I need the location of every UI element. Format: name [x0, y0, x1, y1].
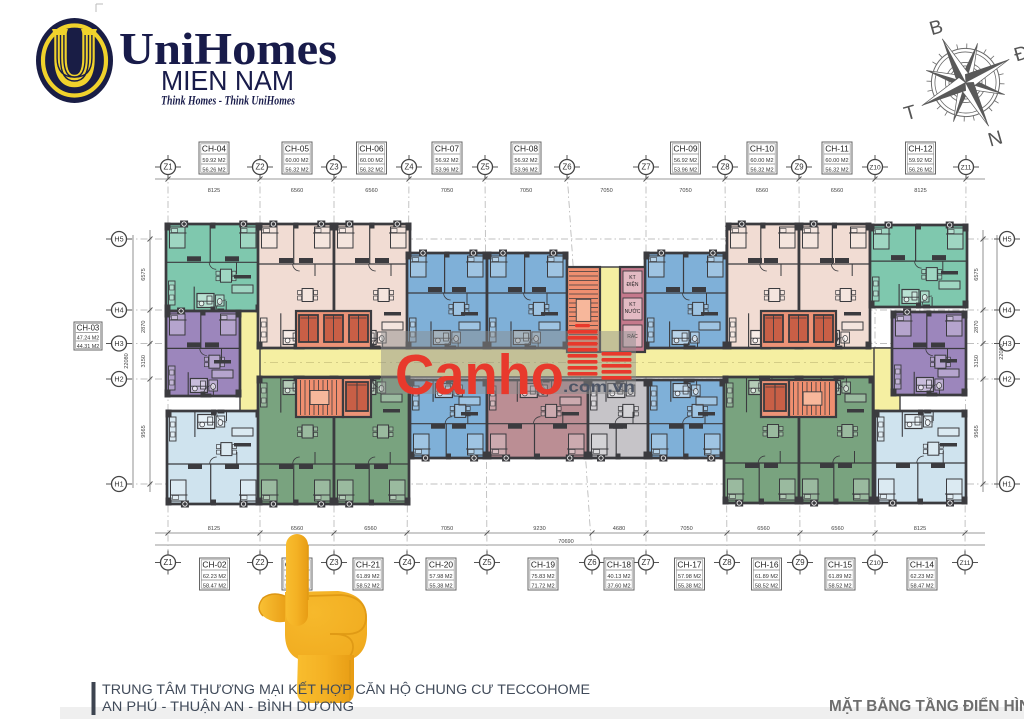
svg-text:Z11: Z11 — [961, 165, 972, 172]
svg-text:56.92 M2: 56.92 M2 — [435, 158, 458, 164]
svg-text:56.26 M2: 56.26 M2 — [909, 168, 932, 174]
svg-text:3150: 3150 — [974, 355, 980, 367]
svg-text:8125: 8125 — [914, 526, 926, 532]
svg-text:CH-04: CH-04 — [202, 144, 227, 154]
svg-text:55.38 M2: 55.38 M2 — [678, 584, 701, 590]
svg-text:ĐIỆN: ĐIỆN — [627, 280, 639, 288]
svg-text:Z1: Z1 — [163, 558, 172, 567]
svg-text:MẶT BẰNG TẦNG ĐIỂN HÌNH: MẶT BẰNG TẦNG ĐIỂN HÌNH — [829, 697, 1024, 715]
svg-text:CH-02: CH-02 — [202, 560, 227, 570]
svg-text:CH-14: CH-14 — [910, 560, 935, 570]
svg-text:56.32 M2: 56.32 M2 — [750, 168, 773, 174]
svg-text:58.52 M2: 58.52 M2 — [828, 584, 851, 590]
svg-text:6560: 6560 — [364, 526, 376, 532]
svg-text:8125: 8125 — [208, 188, 220, 194]
svg-text:NƯỚC: NƯỚC — [625, 308, 641, 315]
svg-text:Z6: Z6 — [587, 558, 596, 567]
svg-text:TRUNG TÂM THƯƠNG MẠI KẾT HỢP C: TRUNG TÂM THƯƠNG MẠI KẾT HỢP CĂN HỘ CHUN… — [102, 682, 590, 697]
svg-text:H5: H5 — [114, 235, 123, 244]
svg-text:H3: H3 — [114, 339, 123, 348]
svg-text:CH-08: CH-08 — [514, 144, 539, 154]
svg-text:62.23 M2: 62.23 M2 — [203, 574, 226, 580]
svg-text:58.47 M2: 58.47 M2 — [910, 584, 933, 590]
svg-text:H1: H1 — [114, 480, 123, 489]
svg-text:CH-18: CH-18 — [607, 560, 632, 570]
svg-text:75.83 M2: 75.83 M2 — [531, 574, 554, 580]
svg-text:58.47 M2: 58.47 M2 — [203, 584, 226, 590]
svg-text:58.52 M2: 58.52 M2 — [755, 584, 778, 590]
svg-text:56.32 M2: 56.32 M2 — [285, 168, 308, 174]
svg-text:Think Homes - Think UniHomes: Think Homes - Think UniHomes — [161, 94, 295, 108]
svg-text:Z11: Z11 — [960, 560, 971, 567]
svg-text:56.26 M2: 56.26 M2 — [202, 168, 225, 174]
svg-text:CH-10: CH-10 — [750, 144, 775, 154]
svg-text:Z5: Z5 — [480, 163, 490, 172]
svg-text:70690: 70690 — [558, 539, 574, 545]
svg-text:3150: 3150 — [141, 355, 147, 367]
svg-text:CH-03: CH-03 — [77, 324, 100, 333]
svg-text:37.60 M2: 37.60 M2 — [607, 584, 630, 590]
svg-text:6560: 6560 — [757, 526, 769, 532]
svg-text:61.89 M2: 61.89 M2 — [755, 574, 778, 580]
svg-text:Z9: Z9 — [794, 163, 803, 172]
svg-text:Z10: Z10 — [869, 165, 881, 172]
svg-text:CH-11: CH-11 — [825, 144, 849, 154]
svg-text:CH-12: CH-12 — [908, 144, 933, 154]
svg-text:59.92 M2: 59.92 M2 — [909, 158, 932, 164]
svg-text:57.98 M2: 57.98 M2 — [429, 574, 452, 580]
svg-text:6560: 6560 — [291, 526, 303, 532]
svg-text:71.72 M2: 71.72 M2 — [531, 584, 554, 590]
svg-text:6575: 6575 — [974, 268, 980, 280]
svg-text:Canho: Canho — [395, 343, 564, 407]
svg-text:Z3: Z3 — [329, 558, 338, 567]
svg-text:60.00 M2: 60.00 M2 — [825, 158, 848, 164]
svg-text:7050: 7050 — [680, 526, 692, 532]
svg-text:KT: KT — [629, 275, 635, 281]
svg-text:8125: 8125 — [914, 188, 926, 194]
svg-text:61.89 M2: 61.89 M2 — [828, 574, 851, 580]
svg-text:CH-07: CH-07 — [435, 144, 460, 154]
svg-text:53.96 M2: 53.96 M2 — [514, 168, 537, 174]
svg-text:Z4: Z4 — [404, 163, 414, 172]
svg-text:H4: H4 — [114, 306, 123, 315]
svg-text:Z7: Z7 — [641, 558, 650, 567]
svg-text:Z5: Z5 — [482, 558, 492, 567]
svg-text:Z10: Z10 — [869, 560, 881, 567]
svg-text:Z2: Z2 — [255, 163, 264, 172]
svg-text:56.92 M2: 56.92 M2 — [514, 158, 537, 164]
svg-text:AN PHÚ - THUẬN AN - BÌNH DƯƠNG: AN PHÚ - THUẬN AN - BÌNH DƯƠNG — [102, 699, 354, 714]
svg-text:9565: 9565 — [974, 425, 980, 437]
svg-text:MIEN NAM: MIEN NAM — [161, 65, 294, 96]
svg-text:Z8: Z8 — [720, 163, 729, 172]
svg-text:56.92 M2: 56.92 M2 — [674, 158, 697, 164]
svg-text:60.00 M2: 60.00 M2 — [750, 158, 773, 164]
svg-text:40.13 M2: 40.13 M2 — [607, 574, 630, 580]
svg-text:6560: 6560 — [291, 188, 303, 194]
svg-text:Z3: Z3 — [329, 163, 338, 172]
svg-text:61.89 M2: 61.89 M2 — [356, 574, 379, 580]
svg-text:CH-19: CH-19 — [531, 560, 556, 570]
svg-text:H5: H5 — [1002, 235, 1011, 244]
svg-text:22080: 22080 — [999, 344, 1005, 360]
svg-text:CH-06: CH-06 — [359, 144, 384, 154]
svg-text:60.00 M2: 60.00 M2 — [285, 158, 308, 164]
svg-text:62.23 M2: 62.23 M2 — [910, 574, 933, 580]
svg-text:Z8: Z8 — [722, 558, 731, 567]
svg-text:CH-17: CH-17 — [677, 560, 702, 570]
svg-text:KT: KT — [629, 302, 635, 308]
svg-text:CH-20: CH-20 — [429, 560, 454, 570]
svg-text:7050: 7050 — [679, 188, 691, 194]
svg-text:7050: 7050 — [441, 526, 453, 532]
svg-text:Z6: Z6 — [562, 163, 571, 172]
svg-text:59.92 M2: 59.92 M2 — [202, 158, 225, 164]
svg-text:9565: 9565 — [141, 425, 147, 437]
svg-text:6560: 6560 — [831, 188, 843, 194]
svg-text:9230: 9230 — [533, 526, 545, 532]
svg-text:56.32 M2: 56.32 M2 — [360, 168, 383, 174]
svg-text:H2: H2 — [1002, 375, 1011, 384]
svg-text:Z2: Z2 — [255, 558, 264, 567]
svg-text:CH-16: CH-16 — [754, 560, 779, 570]
svg-text:2870: 2870 — [974, 321, 980, 333]
svg-text:Z1: Z1 — [163, 163, 172, 172]
svg-text:53.96 M2: 53.96 M2 — [435, 168, 458, 174]
svg-text:6575: 6575 — [141, 268, 147, 280]
svg-text:44.31 M2: 44.31 M2 — [77, 344, 99, 350]
svg-text:56.32 M2: 56.32 M2 — [825, 168, 848, 174]
svg-text:2870: 2870 — [141, 321, 147, 333]
svg-text:H4: H4 — [1002, 306, 1011, 315]
svg-text:22080: 22080 — [124, 353, 130, 369]
svg-text:6560: 6560 — [756, 188, 768, 194]
svg-text:H1: H1 — [1002, 480, 1011, 489]
svg-text:CH-15: CH-15 — [828, 560, 853, 570]
svg-text:Z4: Z4 — [402, 558, 412, 567]
svg-text:53.96 M2: 53.96 M2 — [674, 168, 697, 174]
svg-text:60.00 M2: 60.00 M2 — [360, 158, 383, 164]
svg-text:Z7: Z7 — [641, 163, 650, 172]
svg-text:7050: 7050 — [441, 188, 453, 194]
svg-text:.com.vn: .com.vn — [563, 379, 635, 396]
svg-text:Z9: Z9 — [795, 558, 804, 567]
svg-text:6560: 6560 — [831, 526, 843, 532]
svg-text:7050: 7050 — [520, 188, 532, 194]
svg-text:CH-05: CH-05 — [285, 144, 310, 154]
svg-text:4680: 4680 — [613, 526, 625, 532]
svg-text:H2: H2 — [114, 375, 123, 384]
svg-text:8125: 8125 — [208, 526, 220, 532]
svg-text:55.38 M2: 55.38 M2 — [429, 584, 452, 590]
svg-text:7050: 7050 — [600, 188, 612, 194]
svg-text:6560: 6560 — [365, 188, 377, 194]
svg-text:CH-09: CH-09 — [673, 144, 698, 154]
svg-text:58.52 M2: 58.52 M2 — [356, 584, 379, 590]
svg-text:57.98 M2: 57.98 M2 — [678, 574, 701, 580]
svg-text:CH-21: CH-21 — [356, 560, 381, 570]
svg-text:47.24 M2: 47.24 M2 — [77, 335, 99, 341]
